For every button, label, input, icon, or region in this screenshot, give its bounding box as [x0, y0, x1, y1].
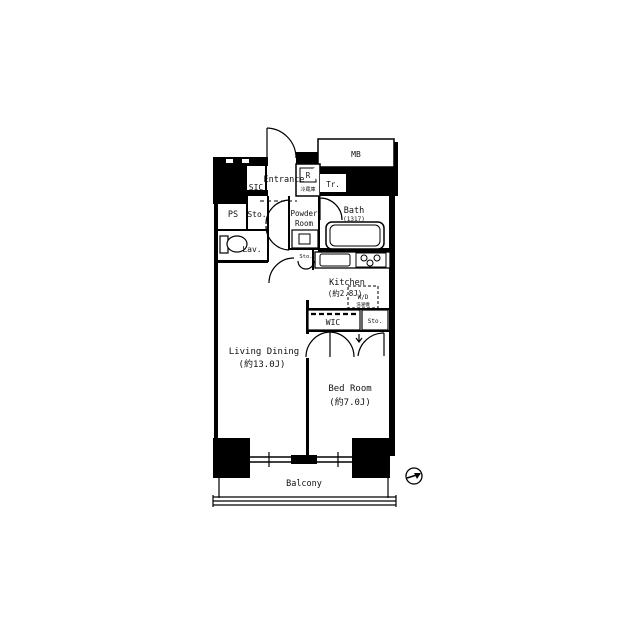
wic-door-arc-left [306, 332, 330, 357]
column-top-left [213, 163, 247, 204]
entrance-door-arc [267, 128, 296, 158]
compass-icon [406, 468, 422, 484]
storage-wic-label: Sto. [368, 318, 382, 325]
wall-above-r-box [296, 152, 318, 164]
hall-door-arc-upper [266, 200, 289, 224]
column-bottom-right [352, 438, 390, 478]
refrigerator-label: R [306, 171, 311, 180]
powder-room-label-1: Powder [290, 209, 318, 218]
living-dining-label: Living Dining [229, 347, 299, 357]
bathtub-inner-icon [330, 225, 380, 246]
living-dining-size-label: (約13.0J) [239, 358, 286, 370]
washer-dryer-sub-label: 洗濯機 [356, 301, 370, 308]
wall-hall-left [267, 196, 269, 262]
floor-plan-drawing: SIC Entrance R 冷蔵庫 MB Tr. PS Sto. Powder… [0, 0, 640, 640]
meter-box-label: MB [351, 150, 361, 159]
ps-label: PS [228, 210, 238, 220]
storage-label: Sto. [247, 210, 266, 219]
refrigerator-sub-label: 冷蔵庫 [300, 186, 315, 193]
living-door-arc [269, 258, 294, 283]
entrance-label: Entrance [264, 175, 305, 185]
bedroom-size-label: (約7.0J) [329, 396, 371, 408]
bath-label: Bath [344, 206, 364, 216]
column-bottom-left [213, 438, 250, 478]
hall-door-arc-lower [266, 226, 289, 250]
wic-door-arc-right [330, 332, 354, 357]
wall-hall-right [288, 196, 290, 250]
wall-left-outer [214, 160, 218, 456]
bath-size-label: (1317) [343, 216, 365, 223]
balcony-label: Balcony [286, 479, 322, 489]
window-mullion-center [291, 455, 317, 464]
sic-label: SIC [249, 183, 264, 192]
trunk-label: Tr. [326, 180, 340, 189]
wall-hatch-notch [226, 159, 233, 163]
storage-small-door-left [298, 261, 306, 269]
wall-right-outer [389, 194, 395, 456]
wall-sto-lav [218, 229, 268, 231]
bath-door-arc [320, 198, 342, 220]
sto-wic-door-arc [358, 333, 384, 356]
storage-small-label: Sto. [299, 254, 312, 260]
door-swing-arrow [356, 334, 362, 342]
wall-lav-bottom [214, 260, 268, 263]
washer-dryer-label: W/D [358, 294, 369, 301]
powder-room-label-2: Room [295, 219, 314, 228]
vanity-basin-icon [299, 234, 310, 244]
wic-label: WIC [326, 318, 341, 327]
lavatory-label: Lav. [242, 245, 261, 254]
floor-plan-page: SIC Entrance R 冷蔵庫 MB Tr. PS Sto. Powder… [0, 0, 640, 640]
wall-hatch-notch [242, 159, 249, 163]
kitchen-label: Kitchen [329, 278, 365, 288]
kitchen-sink-icon [320, 254, 350, 266]
bedroom-label: Bed Room [328, 384, 371, 394]
